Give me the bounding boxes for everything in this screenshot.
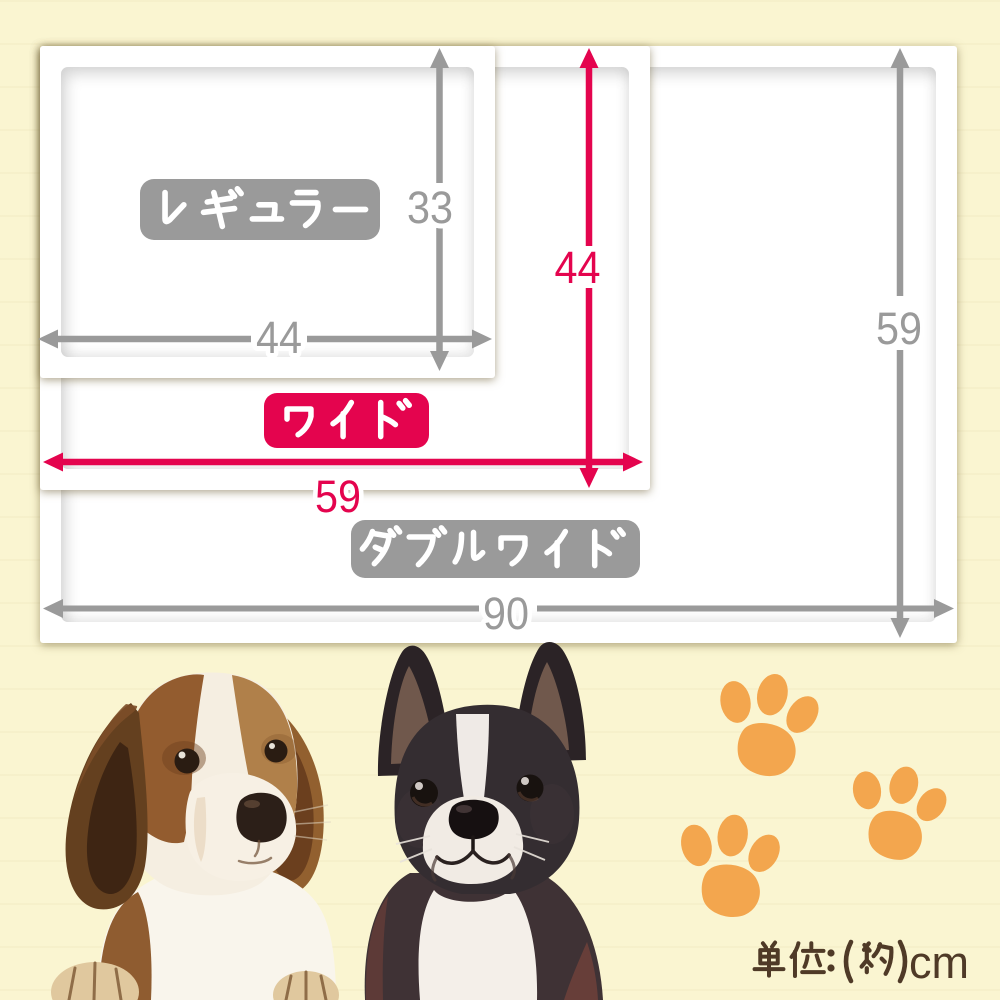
svg-text:44: 44 xyxy=(555,242,601,293)
svg-text:33: 33 xyxy=(407,182,453,233)
svg-text:59: 59 xyxy=(315,471,361,522)
svg-text:90: 90 xyxy=(483,588,529,639)
svg-text:cm: cm xyxy=(909,937,969,988)
svg-text:59: 59 xyxy=(876,303,922,354)
svg-text:44: 44 xyxy=(256,312,302,363)
